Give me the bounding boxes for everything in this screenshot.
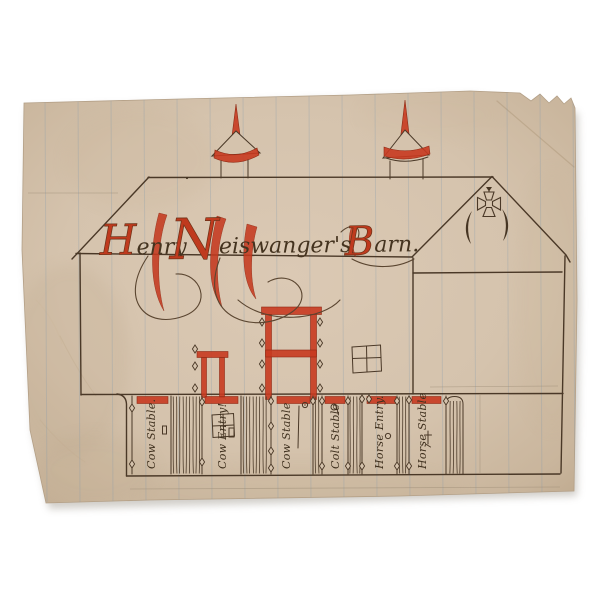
door-post xyxy=(220,358,225,398)
title-word-barn: arn. xyxy=(374,232,419,257)
board-stripe xyxy=(315,397,316,474)
main-floor-line xyxy=(81,394,563,395)
title-word-neiswangers: eiswanger's xyxy=(219,233,352,259)
ridge-dot xyxy=(186,177,188,179)
stall-label-cow-entry: Cow Entry! xyxy=(216,403,229,469)
stall-label-cow-stable-1: Cow Stable. xyxy=(145,399,158,469)
door-post xyxy=(202,358,207,398)
board-stripe xyxy=(246,397,247,474)
title-cap-n: N xyxy=(168,207,222,273)
board-stripe xyxy=(457,401,458,474)
board-stripe xyxy=(263,397,264,474)
stall-label-cow-stable-2: Cow Stable xyxy=(280,402,293,469)
stall-label-horse-stable: Horse Stable xyxy=(416,393,429,470)
board-stripe xyxy=(402,397,403,474)
board-stripe xyxy=(318,397,319,474)
stall-lintel xyxy=(325,397,345,404)
eye-dot xyxy=(304,404,305,405)
artwork-svg: Cow Stable. Cow Entry! Cow Stable Colt S… xyxy=(0,0,600,600)
board-stripe xyxy=(176,397,177,474)
board-stripe xyxy=(357,397,358,474)
end-section-line xyxy=(413,272,562,273)
board-stripe xyxy=(399,397,400,474)
board-stripe xyxy=(173,397,174,474)
board-stripe xyxy=(243,397,244,474)
stall-label-colt-stable: Colt Stable xyxy=(329,403,342,469)
door-lintel xyxy=(262,307,322,315)
board-stripe xyxy=(253,397,254,474)
board-stripe xyxy=(183,397,184,474)
title-cap-b: B xyxy=(344,219,375,265)
photo-of-antique-drawing: Cow Stable. Cow Entry! Cow Stable Colt S… xyxy=(0,0,600,600)
door-crossbar xyxy=(266,350,317,357)
stall-label-horse-entry: Horse Entry. xyxy=(373,395,386,470)
roof-ridge-line xyxy=(148,177,493,178)
door-lintel xyxy=(197,352,228,358)
title-cap-h: H xyxy=(99,215,139,264)
left-wall xyxy=(80,253,81,395)
stall-lintel xyxy=(205,397,238,404)
board-stripe xyxy=(193,397,194,474)
